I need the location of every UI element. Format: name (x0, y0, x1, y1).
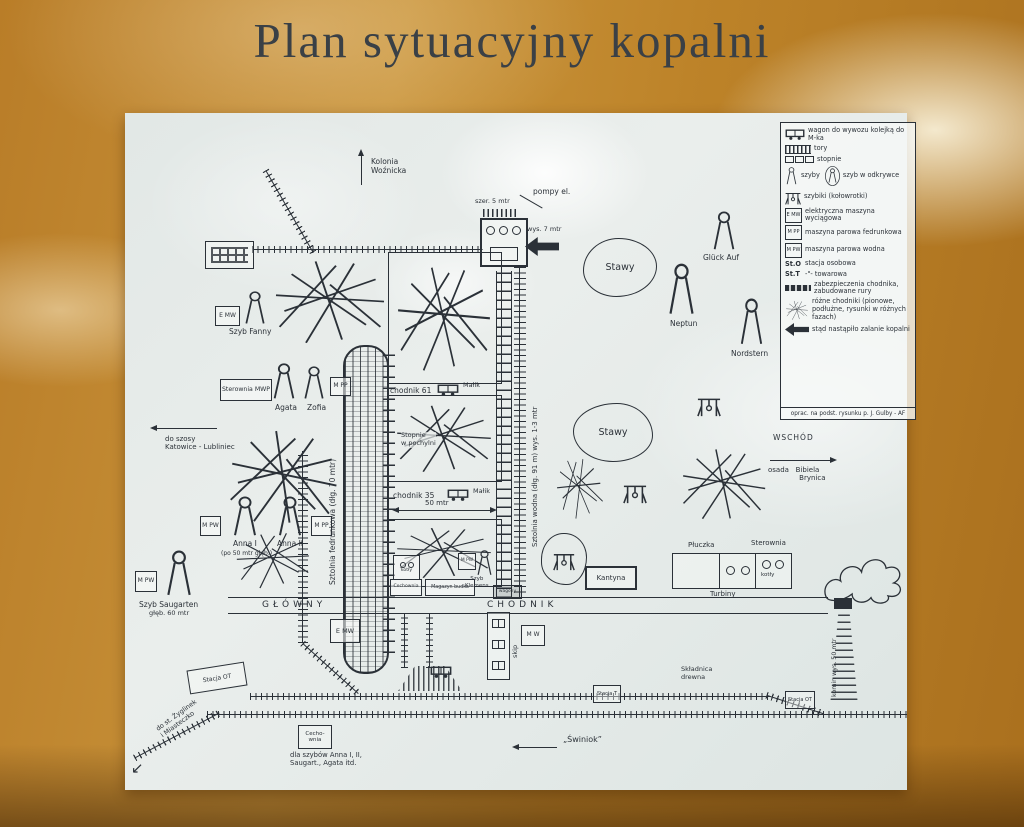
winch-blob (541, 533, 587, 585)
station-ot-box-1: Stacja OT (186, 662, 247, 695)
legend-label: maszyna parowa fedrunkowa (805, 229, 902, 237)
boiler-circle (775, 560, 784, 569)
cechownia-box: Cecho- wnia (298, 725, 332, 749)
szybik-icon (553, 547, 575, 571)
pond-stawy-1: Stawy (583, 238, 657, 297)
legend-label: wagon do wywozu kolejką do M-ka (808, 127, 911, 142)
legend-label: stąd nastąpiło zalanie kopalni (812, 326, 910, 334)
turbine-circle (726, 566, 735, 575)
sterownia-label: Sterownia (751, 539, 786, 547)
gallery-61-label: chodnik 61 (390, 386, 431, 395)
wagon-icon (785, 129, 805, 140)
cechownia-small-box: Cechownia (390, 579, 422, 596)
malik-label-2: Małik (473, 488, 490, 496)
road-label: do szosy Katowice - Lubliniec (165, 435, 235, 452)
fanny-machine-box: E MW (215, 306, 240, 326)
width-arrow-line (395, 510, 493, 511)
swiniok-label: „Świniok” (563, 735, 602, 745)
shaft-icon-saugarten (163, 550, 195, 597)
emw-box: E MW (785, 208, 802, 223)
old-workings-scribble-icon (218, 415, 350, 538)
east-label: WSCHÓD (773, 433, 814, 442)
legend-item-wagon: wagon do wywozu kolejką do M-ka (785, 127, 911, 142)
flood-arrow-icon (525, 237, 559, 256)
old-workings-scribble-icon (675, 439, 774, 529)
smoke-icon (820, 550, 905, 605)
road-arrow-head-icon (150, 425, 157, 431)
east-arrow-head-icon (830, 457, 837, 463)
zofia-machine-box: M PP (330, 377, 351, 396)
headframe-hatch (483, 209, 519, 217)
flood-arrow-icon (785, 323, 809, 336)
legend-label: -"- towarowa (805, 271, 847, 279)
timber-yard-label: Składnica drewna (681, 666, 712, 682)
steps-incline-label: Stopnie w pochylni (401, 432, 436, 448)
wagony-box: wagony (493, 585, 522, 599)
turbiny-label: Turbiny (710, 590, 736, 598)
boilers-small-label: kotły (401, 569, 412, 574)
railway-track-main-bottom (207, 711, 907, 718)
pumps-leader-line (519, 195, 542, 209)
boiler-circle (762, 560, 771, 569)
height-7m-label: wys. 7 mtr (527, 226, 561, 234)
legend-label: zabezpieczenia chodnika, zabudowane rury (814, 281, 911, 296)
zofia-label: Zofia (307, 403, 326, 412)
old-workings-scribble-icon (270, 253, 390, 348)
main-gallery-corridor: GŁÓWNY CHODNIK (228, 597, 828, 614)
pond-label-2: Stawy (599, 427, 628, 438)
legend-item-szyby: szyby szyb w odkrywce (785, 166, 911, 186)
chimney-label: komin wys. 50 mtr (831, 638, 838, 697)
station-o-key: St.O (785, 260, 802, 268)
water-adit-track (514, 265, 526, 598)
shaft-icon-neptun (665, 263, 698, 316)
saugarten-label: Szyb Saugarten (139, 600, 198, 609)
electric-pumps-label: pompy el. (533, 187, 570, 196)
shaft-icon-gluck-auf (710, 211, 738, 251)
cechownia-sub-label: dla szybów Anna I, II, Saugart., Agata i… (290, 751, 362, 767)
nordstern-label: Nordstern (731, 349, 768, 358)
legend-item-emw: E MW elektryczna maszyna wyciągowa (785, 208, 911, 223)
legend-label: szyby (801, 172, 820, 180)
water-adit-label: Sztolnia wodna (dłg. 91 m) wys. 1-3 mtr (531, 407, 539, 547)
gluck-auf-label: Glück Auf (703, 253, 739, 262)
klemens-label: Szyb Klemens (465, 576, 489, 589)
building-divider (755, 554, 756, 588)
industrial-building: kotły (672, 553, 792, 589)
open-pit-shaft-icon (825, 166, 840, 186)
legend-label: szybiki (kołowrotki) (804, 193, 867, 201)
fanny-label: Szyb Fanny (229, 327, 271, 336)
building-divider (719, 554, 720, 588)
legend-label: tory (814, 145, 827, 153)
legend-item-szybiki: szybiki (kołowrotki) (785, 188, 911, 205)
legend-label: szyb w odkrywce (843, 172, 899, 180)
pluczka-label: Płuczka (688, 541, 714, 549)
railway-track-upper-bottom (250, 693, 770, 700)
building-top-left (205, 241, 254, 269)
skip-label: skip (511, 645, 519, 658)
main-gallery-label-2: CHODNIK (487, 600, 557, 610)
workings-rect-35: Stopnie w pochylni (388, 395, 502, 482)
turbine-circle (741, 566, 750, 575)
shaft-icon-klemens (475, 550, 494, 576)
legend-label: stopnie (817, 156, 841, 164)
kolonia-arrow-line (361, 155, 362, 185)
legend-item-zabezpieczenia: zabezpieczenia chodnika, zabudowane rury (785, 281, 911, 296)
neptun-label: Neptun (670, 319, 697, 328)
shaft-icon-fanny (242, 291, 268, 325)
saugarten-machine-box: M PW (135, 571, 157, 592)
klemens-machine-box: M PW (458, 553, 476, 570)
swiniok-arrow-line (517, 747, 557, 748)
shaft-icon-zofia (301, 366, 327, 400)
mine-plan-board: ↙ GŁÓWNY CHODNIK szer. 5 mtr pompy el. w… (125, 113, 907, 790)
road-arrow-line (155, 428, 217, 429)
settlement-label: osada Bibiela Brynica (768, 466, 826, 483)
legend-label: stacja osobowa (805, 260, 856, 268)
workings-rect-61 (388, 252, 502, 384)
malik-label-1: Małik (463, 382, 480, 390)
east-arrow-line (770, 460, 832, 461)
agata-label: Agata (275, 403, 297, 412)
kolonia-arrow-head-icon (358, 149, 364, 156)
board-title: Plan sytuacyjny kopalni (0, 12, 1024, 69)
kolonia-label: Kolonia Woźnicka (371, 157, 406, 175)
workings-scribble-icon (393, 257, 495, 377)
galleries-scribble-icon (785, 299, 809, 321)
pump-circles (486, 226, 521, 235)
legend-box: wagon do wywozu kolejką do M-ka tory sto… (780, 122, 916, 420)
legend-item-stopnie: stopnie (785, 156, 911, 164)
emw-machine-box: E MW (330, 619, 360, 643)
legend-item-station-t: St.T -"- towarowa (785, 270, 911, 278)
szybik-icon (623, 478, 647, 504)
legend-label: elektryczna maszyna wyciągowa (805, 208, 911, 223)
swiniok-arrow-head-icon (512, 744, 519, 750)
shaft-icon-agata (270, 363, 298, 400)
szybik-icon (785, 188, 801, 205)
legend-item-station-o: St.O stacja osobowa (785, 260, 911, 268)
skip-track-1 (401, 613, 408, 668)
station-t-box: Stacja T (593, 685, 621, 703)
width-arrow-left-icon (392, 507, 399, 513)
legend-item-chodniki: różne chodniki (pionowe, podłużne, rysun… (785, 298, 911, 321)
boilers-label: kotły (761, 572, 774, 579)
kantyna-box: Kantyna (585, 566, 637, 590)
skip-shaft-box (487, 612, 510, 680)
building-windows (211, 247, 249, 263)
steps-icon (785, 156, 814, 163)
old-workings-scribble-icon (230, 524, 316, 594)
wagon-icon-35 (447, 489, 469, 501)
mpp-box: M PP (785, 225, 802, 240)
legend-item-mpp: M PP maszyna parowa fedrunkowa (785, 225, 911, 240)
legend-label: maszyna parowa wodna (805, 246, 885, 254)
railway-track-diagonal (263, 169, 317, 255)
skip-track-2 (426, 613, 433, 668)
boiler-circles (400, 562, 414, 568)
width-arrow-right-icon (490, 507, 497, 513)
width-5m-label: szer. 5 mtr (475, 198, 510, 206)
mw-machine-box: M W (521, 625, 545, 646)
legend-item-tory: tory (785, 145, 911, 154)
tracks-icon (785, 145, 811, 154)
photo-information-board: Plan sytuacyjny kopalni ↙ GŁÓWNY CHODNIK (0, 0, 1024, 827)
legend-caption: oprac. na podst. rysunku p. J. Gulby - A… (781, 407, 915, 419)
legend-item-mpw: M PW maszyna parowa wodna (785, 243, 911, 258)
shaft-icon (785, 167, 798, 185)
pond-label-1: Stawy (606, 262, 635, 273)
main-gallery-label-1: GŁÓWNY (262, 600, 326, 610)
mpw-box: M PW (785, 243, 802, 258)
legend-label: różne chodniki (pionowe, podłużne, rysun… (812, 298, 911, 321)
saugarten-depth-label: głęb. 60 mtr (149, 610, 189, 618)
wagon-icon-track (430, 666, 452, 678)
corner-arrow-icon: ↙ (131, 759, 144, 777)
boilers-small-box: kotły (393, 555, 420, 580)
station-t-key: St.T (785, 270, 802, 278)
protection-bar-icon (785, 285, 811, 291)
width-50m-label: 50 mtr (425, 499, 449, 507)
shaft-icon-nordstern (737, 298, 766, 346)
legend-item-zalanie: stąd nastąpiło zalanie kopalni (785, 323, 911, 336)
station-ot-box-2: Stacja OT (785, 691, 815, 709)
szybik-icon (697, 391, 721, 417)
sterownia-mwp-box: Sterownia MWP (220, 379, 272, 401)
